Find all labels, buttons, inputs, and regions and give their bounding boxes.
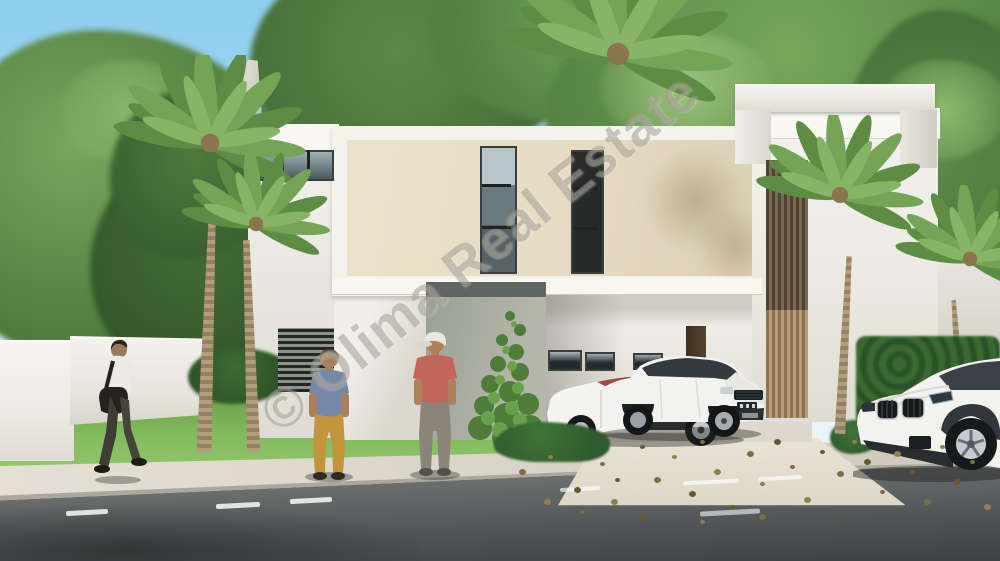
- pedestrian-walking-phone: [86, 336, 148, 486]
- soffit-band: [332, 278, 762, 295]
- palm-tree-canopy: [470, 0, 770, 147]
- slim-window-mullion: [573, 187, 598, 190]
- slim-window: [480, 146, 517, 274]
- slim-window-mullion: [482, 226, 511, 229]
- fallen-leaves: [0, 0, 5, 4]
- palm-tree-canopy: [168, 152, 348, 292]
- gray-wall-top-band: [426, 282, 546, 297]
- wood-louver-panel: [766, 310, 808, 418]
- slim-window: [571, 150, 604, 274]
- car-white-suv-carport: [596, 342, 766, 442]
- architectural-rendering-scene: © Olima Real Estate: [0, 0, 1000, 561]
- car-white-suv-street: [853, 348, 1000, 483]
- pedestrian-coral-shirt-cap: [397, 329, 473, 481]
- pedestrian-blue-shirt: [293, 347, 365, 483]
- front-hedge: [494, 422, 610, 462]
- road-shadow-patch: [0, 505, 420, 561]
- palm-tree-canopy: [880, 185, 1000, 330]
- slim-window-mullion: [482, 184, 511, 187]
- perimeter-wall-near: [0, 340, 74, 461]
- slim-window-mullion: [573, 227, 598, 230]
